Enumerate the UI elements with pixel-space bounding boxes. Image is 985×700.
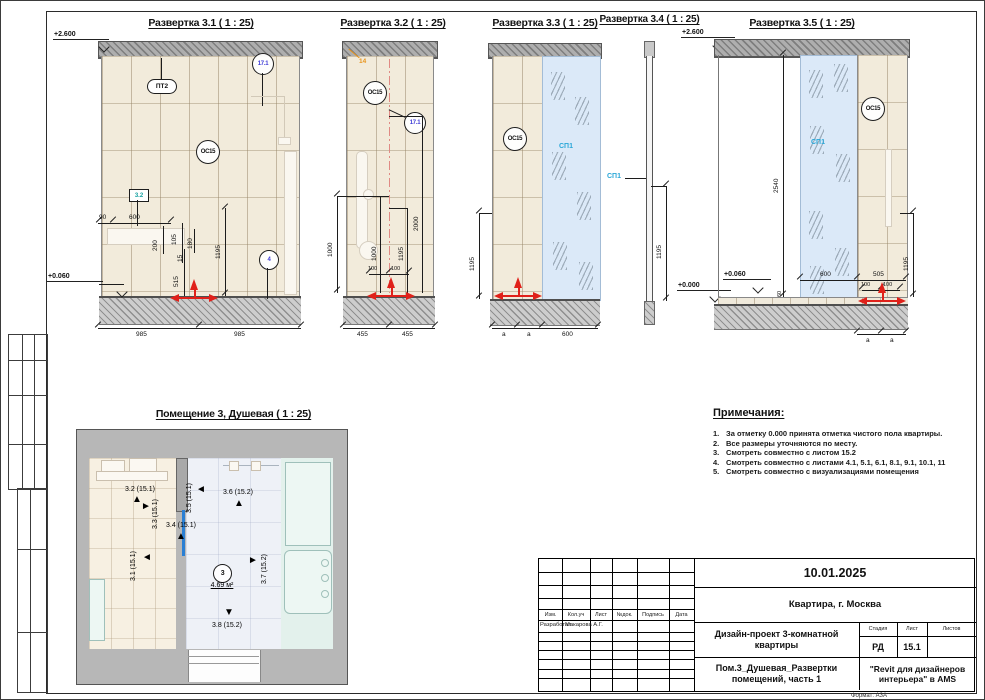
tag-sp1: СП1: [811, 139, 825, 146]
plan-door-opening: [188, 650, 261, 682]
arrow-left-icon: ◄: [142, 553, 152, 563]
shower-pipe-sketch: [284, 96, 285, 138]
dim-label: a: [890, 337, 894, 344]
dim-label: 100: [391, 266, 400, 272]
arrow-right-icon: ►: [248, 556, 258, 566]
note-text: За отметку 0.000 принята отметка чистого…: [726, 429, 946, 439]
dim-line: [857, 280, 906, 281]
line: [539, 585, 694, 586]
leader-line: [267, 268, 268, 299]
leader-line: [161, 58, 162, 79]
elevation-marker-label: 3.5 (15.1): [186, 473, 193, 513]
tag-4: 4: [259, 250, 279, 270]
camera-arrow: [367, 292, 376, 300]
titleblock-project: Дизайн-проект 3-комнатной квартиры: [696, 622, 857, 657]
room-number-tag: 3: [213, 564, 232, 583]
dim-line: [343, 328, 435, 329]
dim-line: [337, 196, 389, 197]
note-item: 3. Смотреть совместно с листом 15.2: [713, 448, 981, 458]
leader-line: [625, 178, 646, 179]
radiator-sketch: [89, 579, 105, 641]
tiled-wall: [492, 56, 544, 299]
dim-label: 2540: [773, 159, 780, 193]
dim-line: [666, 186, 667, 301]
dim-line: [98, 223, 171, 224]
line: [539, 641, 694, 642]
partition-bottom-cap: [644, 301, 655, 325]
col-header-izm: Изм.: [539, 609, 562, 620]
tag-3-2: 3.2: [129, 189, 149, 202]
dim-line: [492, 328, 598, 329]
shower-column-sketch: [284, 151, 297, 295]
glass-partition-edge: [646, 56, 653, 301]
note-number: 5.: [713, 467, 726, 477]
tag-sp1: СП1: [607, 173, 621, 180]
dim-label: 1000: [371, 233, 378, 261]
line: [9, 360, 47, 361]
dim-label: 105: [171, 225, 178, 245]
line: [539, 659, 694, 660]
format-note: Формат: А3А: [851, 693, 887, 699]
col-header-data: Дата: [669, 609, 694, 620]
note-item: 4. Смотреть совместно с листами 4.1, 5.1…: [713, 458, 981, 468]
stage-value: РД: [859, 636, 897, 657]
note-item: 2. Все размеры уточняются по месту.: [713, 439, 981, 449]
dim-line: [479, 213, 492, 214]
camera-arrow: [373, 295, 409, 297]
line: [612, 559, 613, 691]
valve-sketch: [363, 189, 374, 200]
elevation-marker-label: 3.7 (15.2): [261, 542, 268, 584]
room-area-label: 4.69 м²: [201, 582, 243, 589]
tag-14: 14: [359, 58, 366, 65]
dim-label: 455: [357, 331, 368, 338]
camera-arrow: [897, 297, 906, 305]
line: [18, 632, 47, 633]
glass-glint: [579, 262, 593, 290]
camera-arrow: [406, 292, 415, 300]
wall-edge-line: [718, 55, 719, 297]
line: [539, 650, 694, 651]
titleblock-location: Квартира, г. Москва: [694, 587, 976, 622]
view-3-2-title: Развертка 3.2 ( 1 : 25): [329, 17, 457, 29]
note-item: 5. Смотреть совместно с визуализациями п…: [713, 467, 981, 477]
camera-arrow: [170, 294, 179, 302]
drawing-sheet: Развертка 3.1 ( 1 : 25) +2.600 +0.060 ПТ…: [0, 0, 985, 700]
camera-arrow: [533, 292, 542, 300]
camera-arrow: [864, 300, 900, 302]
note-text: Смотреть совместно с визуализациями поме…: [726, 467, 919, 477]
line: [188, 656, 259, 657]
line: [99, 284, 124, 285]
tag-17-1: 17.1: [252, 53, 274, 75]
col-header-koluch: Кол.уч: [562, 609, 590, 620]
level-mark: +0.000: [677, 282, 731, 291]
line: [539, 632, 694, 633]
dim-label: 1000: [327, 229, 334, 257]
glass-partition: [542, 56, 601, 301]
dim-label: 600: [820, 271, 831, 278]
elevation-marker-label: 3.4 (15.1): [166, 522, 196, 529]
glass-glint: [553, 242, 567, 270]
dim-label: 180: [187, 229, 194, 249]
note-number: 3.: [713, 448, 726, 458]
fixture-sketch: [96, 471, 168, 481]
tiled-wall: [857, 55, 908, 297]
towel-rail-sketch: [885, 149, 892, 227]
sheet-header: Лист: [897, 622, 927, 636]
dim-line: [194, 229, 195, 253]
shower-arm-sketch: [251, 96, 285, 97]
leader-line: [262, 73, 263, 106]
arrow-up-icon: ▲: [234, 499, 244, 509]
note-text: Все размеры уточняются по месту.: [726, 439, 857, 449]
dim-label: 1195: [656, 229, 663, 259]
dim-label: a: [502, 331, 506, 338]
stage-header: Стадия: [859, 622, 897, 636]
dim-line: [913, 213, 914, 297]
glass-partition: [800, 55, 859, 299]
dim-label: 1195: [398, 231, 405, 261]
tag-os15: ОС15: [196, 140, 220, 164]
dim-line: [389, 116, 422, 117]
dim-line: [225, 208, 226, 296]
margin-table-lower: [17, 488, 48, 693]
view-3-1-title: Развертка 3.1 ( 1 : 25): [106, 17, 296, 29]
dim-label: 100: [368, 266, 377, 272]
elevation-marker-label: 3.8 (15.2): [212, 622, 242, 629]
line: [18, 549, 47, 550]
dim-label: a: [866, 337, 870, 344]
dim-label: 2000: [413, 201, 420, 231]
view-3-5-title: Развертка 3.5 ( 1 : 25): [741, 17, 863, 29]
camera-arrow: [500, 295, 536, 297]
glass-glint: [575, 97, 589, 125]
dim-label: 985: [136, 331, 147, 338]
dim-line: [369, 274, 409, 275]
line: [539, 620, 694, 621]
dim-label: 1195: [469, 241, 476, 271]
view-3-4-title: Развертка 3.4 ( 1 : 25): [598, 14, 701, 25]
dim-line: [422, 116, 423, 293]
dim-label: 600: [129, 214, 140, 221]
fixture-sketch: [251, 461, 261, 471]
tag-sp1: СП1: [559, 143, 573, 150]
titleblock-sheet-title: Пом.3_Душевая_Развертки помещений, часть…: [696, 657, 857, 691]
level-mark: +0.060: [723, 271, 771, 280]
dim-label: 985: [234, 331, 245, 338]
level-mark: +2.600: [681, 29, 735, 38]
shower-head-sketch: [278, 137, 291, 145]
dim-label: 1195: [215, 229, 222, 259]
dim-label: 1195: [903, 241, 910, 271]
dim-line: [98, 328, 301, 329]
camera-marker: [860, 282, 904, 308]
line: [539, 572, 694, 573]
col-header-list: Лист: [590, 609, 612, 620]
dim-line: [479, 213, 480, 299]
dim-line: [857, 334, 906, 335]
col-header-ndok: №док.: [612, 609, 637, 620]
margin-table-upper: [8, 334, 48, 490]
col-header-podpis: Подпись: [637, 609, 669, 620]
glass-glint: [551, 72, 565, 100]
line: [188, 663, 259, 664]
dim-line: [337, 196, 338, 293]
line: [637, 559, 638, 691]
dim-label: a: [527, 331, 531, 338]
level-mark: +0.060: [47, 273, 103, 282]
elevation-marker-label: 3.1 (15.1): [130, 539, 137, 581]
line: [9, 395, 47, 396]
glass-glint: [834, 64, 848, 92]
camera-marker: [172, 279, 216, 305]
dim-line: [800, 280, 857, 281]
camera-marker: [369, 277, 413, 303]
dim-label: 455: [402, 331, 413, 338]
glass-glint: [809, 70, 823, 98]
sheet-number: 15.1: [897, 636, 927, 657]
arrow-left-icon: ◄: [196, 485, 206, 495]
camera-arrow: [176, 297, 212, 299]
arrow-down-icon: ▼: [224, 608, 234, 618]
level-mark: +2.600: [53, 31, 109, 40]
camera-marker: [496, 277, 540, 303]
elevation-marker-label: 3.2 (15.1): [125, 486, 155, 493]
elevation-marker-label: 3.3 (15.1): [152, 485, 159, 529]
cabinet-sketch: [285, 462, 331, 546]
dim-label: 60: [777, 283, 783, 297]
fixture-sketch: [229, 461, 239, 471]
centerline: [389, 59, 390, 293]
line: [34, 335, 35, 489]
dim-label: 505: [873, 271, 884, 278]
glass-glint: [552, 152, 566, 180]
developer-name: Макарова А.Г.: [565, 622, 603, 628]
tag-os15: ОС15: [503, 127, 527, 151]
dim-label: 600: [562, 331, 573, 338]
glass-glint: [836, 154, 850, 182]
sheets-total-header: Листов: [927, 622, 976, 636]
fixture-sketch: [321, 559, 329, 567]
glass-glint: [835, 248, 849, 276]
camera-arrow: [494, 292, 503, 300]
view-3-3-title: Развертка 3.3 ( 1 : 25): [484, 17, 606, 29]
elevation-marker-label: 3.6 (15.2): [223, 489, 253, 496]
fixture-sketch: [321, 574, 329, 582]
plan-title: Помещение 3, Душевая ( 1 : 25): [111, 408, 356, 420]
glass-glint: [809, 211, 823, 239]
line: [9, 444, 47, 445]
line: [539, 678, 694, 679]
arrow-right-icon: ►: [141, 502, 151, 512]
shower-rail-sketch: [356, 151, 368, 249]
camera-arrow: [858, 297, 867, 305]
titleblock-org: "Revit для дизайнеров интерьера" в AMS: [861, 657, 974, 691]
tag-pt2: ПТ2: [147, 79, 177, 94]
dim-line: [389, 208, 407, 209]
dim-line: [163, 226, 164, 254]
line: [539, 598, 694, 599]
line: [30, 489, 31, 692]
dim-label: 90: [99, 214, 106, 221]
glass-glint: [577, 192, 591, 220]
notes-title: Примечания:: [713, 407, 784, 419]
arrow-up-icon: ▲: [176, 532, 186, 542]
tag-os15: ОС15: [363, 81, 387, 105]
sheets-total-value: [927, 636, 976, 657]
note-text: Смотреть совместно с листами 4.1, 5.1, 6…: [726, 458, 945, 468]
note-text: Смотреть совместно с листом 15.2: [726, 448, 856, 458]
line: [669, 559, 670, 691]
title-block: Изм. Кол.уч Лист №док. Подпись Дата Разр…: [538, 558, 975, 692]
dim-label: 200: [152, 229, 159, 251]
note-number: 2.: [713, 439, 726, 449]
dim-line: [783, 55, 784, 297]
note-number: 1.: [713, 429, 726, 439]
line: [22, 335, 23, 489]
tag-os15: ОС15: [861, 97, 885, 121]
notes-list: 1. За отметку 0.000 принята отметка чист…: [713, 429, 981, 477]
line: [539, 669, 694, 670]
titleblock-date: 10.01.2025: [694, 559, 976, 587]
note-number: 4.: [713, 458, 726, 468]
camera-arrow: [209, 294, 218, 302]
fixture-sketch: [321, 590, 329, 598]
note-item: 1. За отметку 0.000 принята отметка чист…: [713, 429, 981, 439]
